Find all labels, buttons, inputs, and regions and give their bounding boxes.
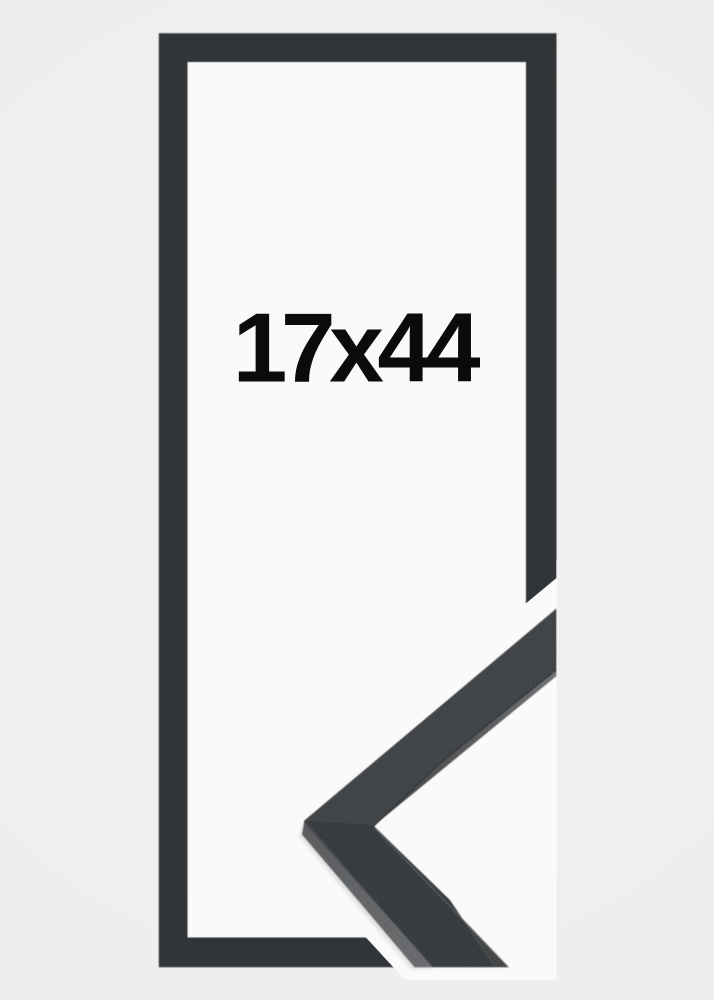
svg-text:17x44: 17x44	[233, 292, 481, 402]
